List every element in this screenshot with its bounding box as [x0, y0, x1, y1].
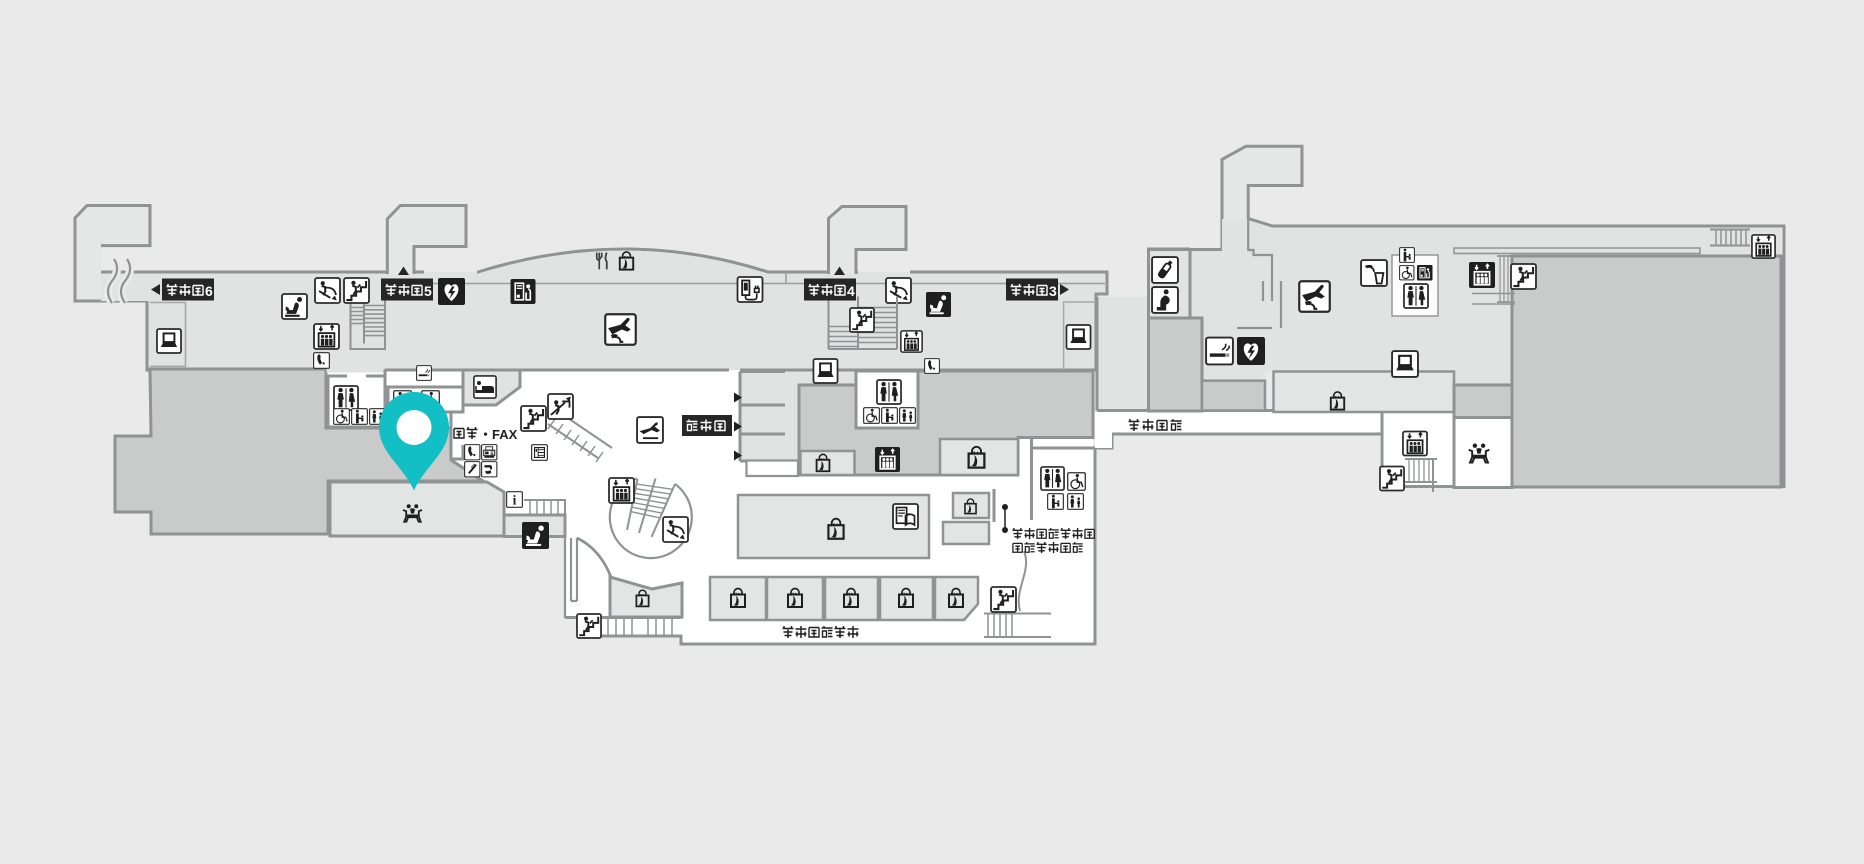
- svg-text:3: 3: [1049, 283, 1057, 299]
- svg-text:5: 5: [424, 283, 432, 299]
- svg-text:4: 4: [847, 283, 855, 299]
- svg-text:6: 6: [205, 283, 213, 299]
- svg-text:・FAX: ・FAX: [479, 427, 518, 442]
